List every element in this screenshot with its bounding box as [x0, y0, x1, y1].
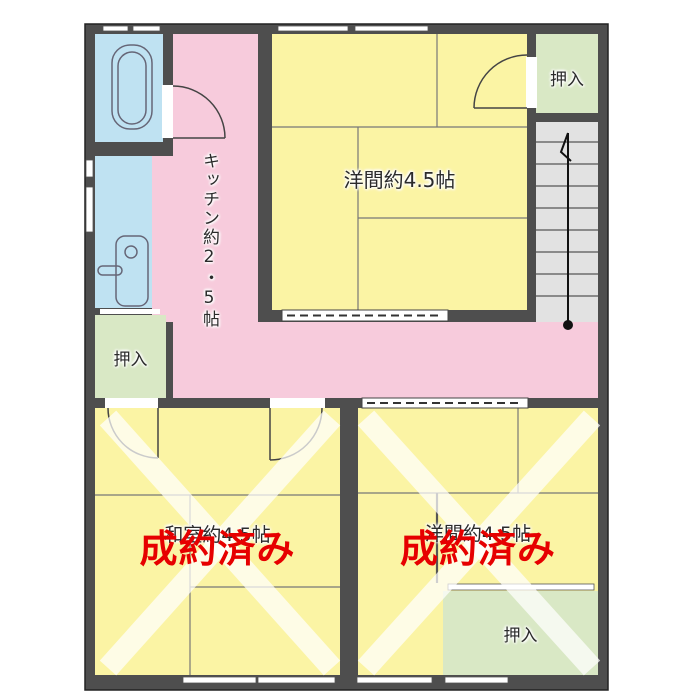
- door-opening: [162, 85, 173, 138]
- kitchen-label: キッチン約2・5帖: [195, 152, 221, 342]
- window: [258, 677, 335, 683]
- sold-stamp-left: 成約済み: [95, 518, 340, 573]
- stairs-start-dot: [563, 320, 573, 330]
- bathroom-area: [95, 34, 163, 142]
- window: [357, 677, 432, 683]
- kitchen-area-side: [152, 156, 173, 322]
- door-opening: [105, 398, 158, 408]
- toilet-area: [95, 156, 152, 308]
- window: [86, 187, 93, 232]
- window: [133, 26, 160, 31]
- window: [278, 26, 348, 31]
- closet-left-label: 押入: [95, 345, 166, 370]
- sold-stamp-right: 成約済み: [358, 518, 598, 573]
- closet-top-right-label: 押入: [536, 65, 598, 90]
- window: [86, 160, 93, 177]
- window: [103, 26, 128, 31]
- door-opening: [270, 398, 325, 408]
- window: [183, 677, 256, 683]
- western-room-label: 洋間約4.5帖: [272, 164, 527, 193]
- floor-plan: 洋間約4.5帖 キッチン約2・5帖 押入 押入 押入 和室約4.5帖 洋間約4.…: [0, 0, 700, 700]
- corridor-area: [173, 322, 598, 398]
- closet-bottom-right-label: 押入: [443, 621, 598, 646]
- window: [355, 26, 428, 31]
- closet-sliding-door: [100, 309, 160, 314]
- window: [445, 677, 508, 683]
